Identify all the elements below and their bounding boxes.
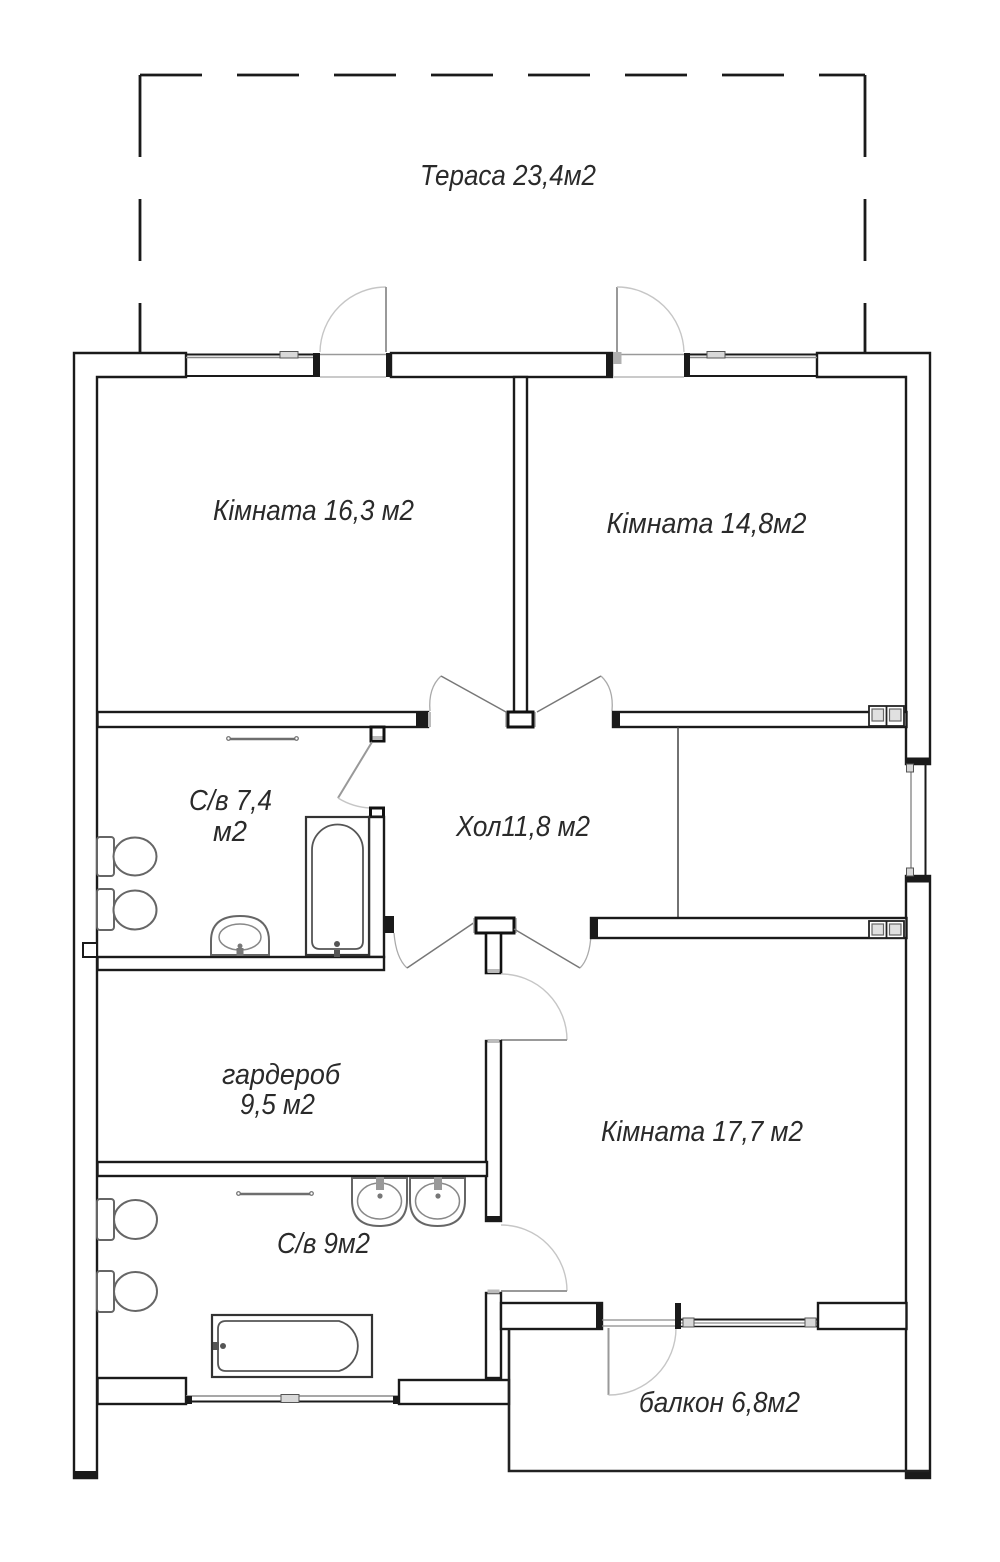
svg-text:гардероб: гардероб: [222, 1059, 342, 1091]
svg-text:балкон 6,8м2: балкон 6,8м2: [639, 1387, 800, 1419]
svg-text:Кімната 14,8м2: Кімната 14,8м2: [607, 508, 807, 540]
svg-text:Хол11,8 м2: Хол11,8 м2: [455, 811, 590, 843]
svg-text:Тераса 23,4м2: Тераса 23,4м2: [420, 160, 596, 192]
svg-text:Кімната 17,7 м2: Кімната 17,7 м2: [601, 1116, 803, 1148]
svg-text:9,5 м2: 9,5 м2: [240, 1089, 315, 1121]
svg-text:С/в 9м2: С/в 9м2: [277, 1228, 370, 1260]
svg-text:Кімната 16,3 м2: Кімната 16,3 м2: [213, 495, 414, 527]
svg-text:м2: м2: [213, 816, 247, 848]
svg-text:С/в 7,4: С/в 7,4: [189, 785, 272, 817]
